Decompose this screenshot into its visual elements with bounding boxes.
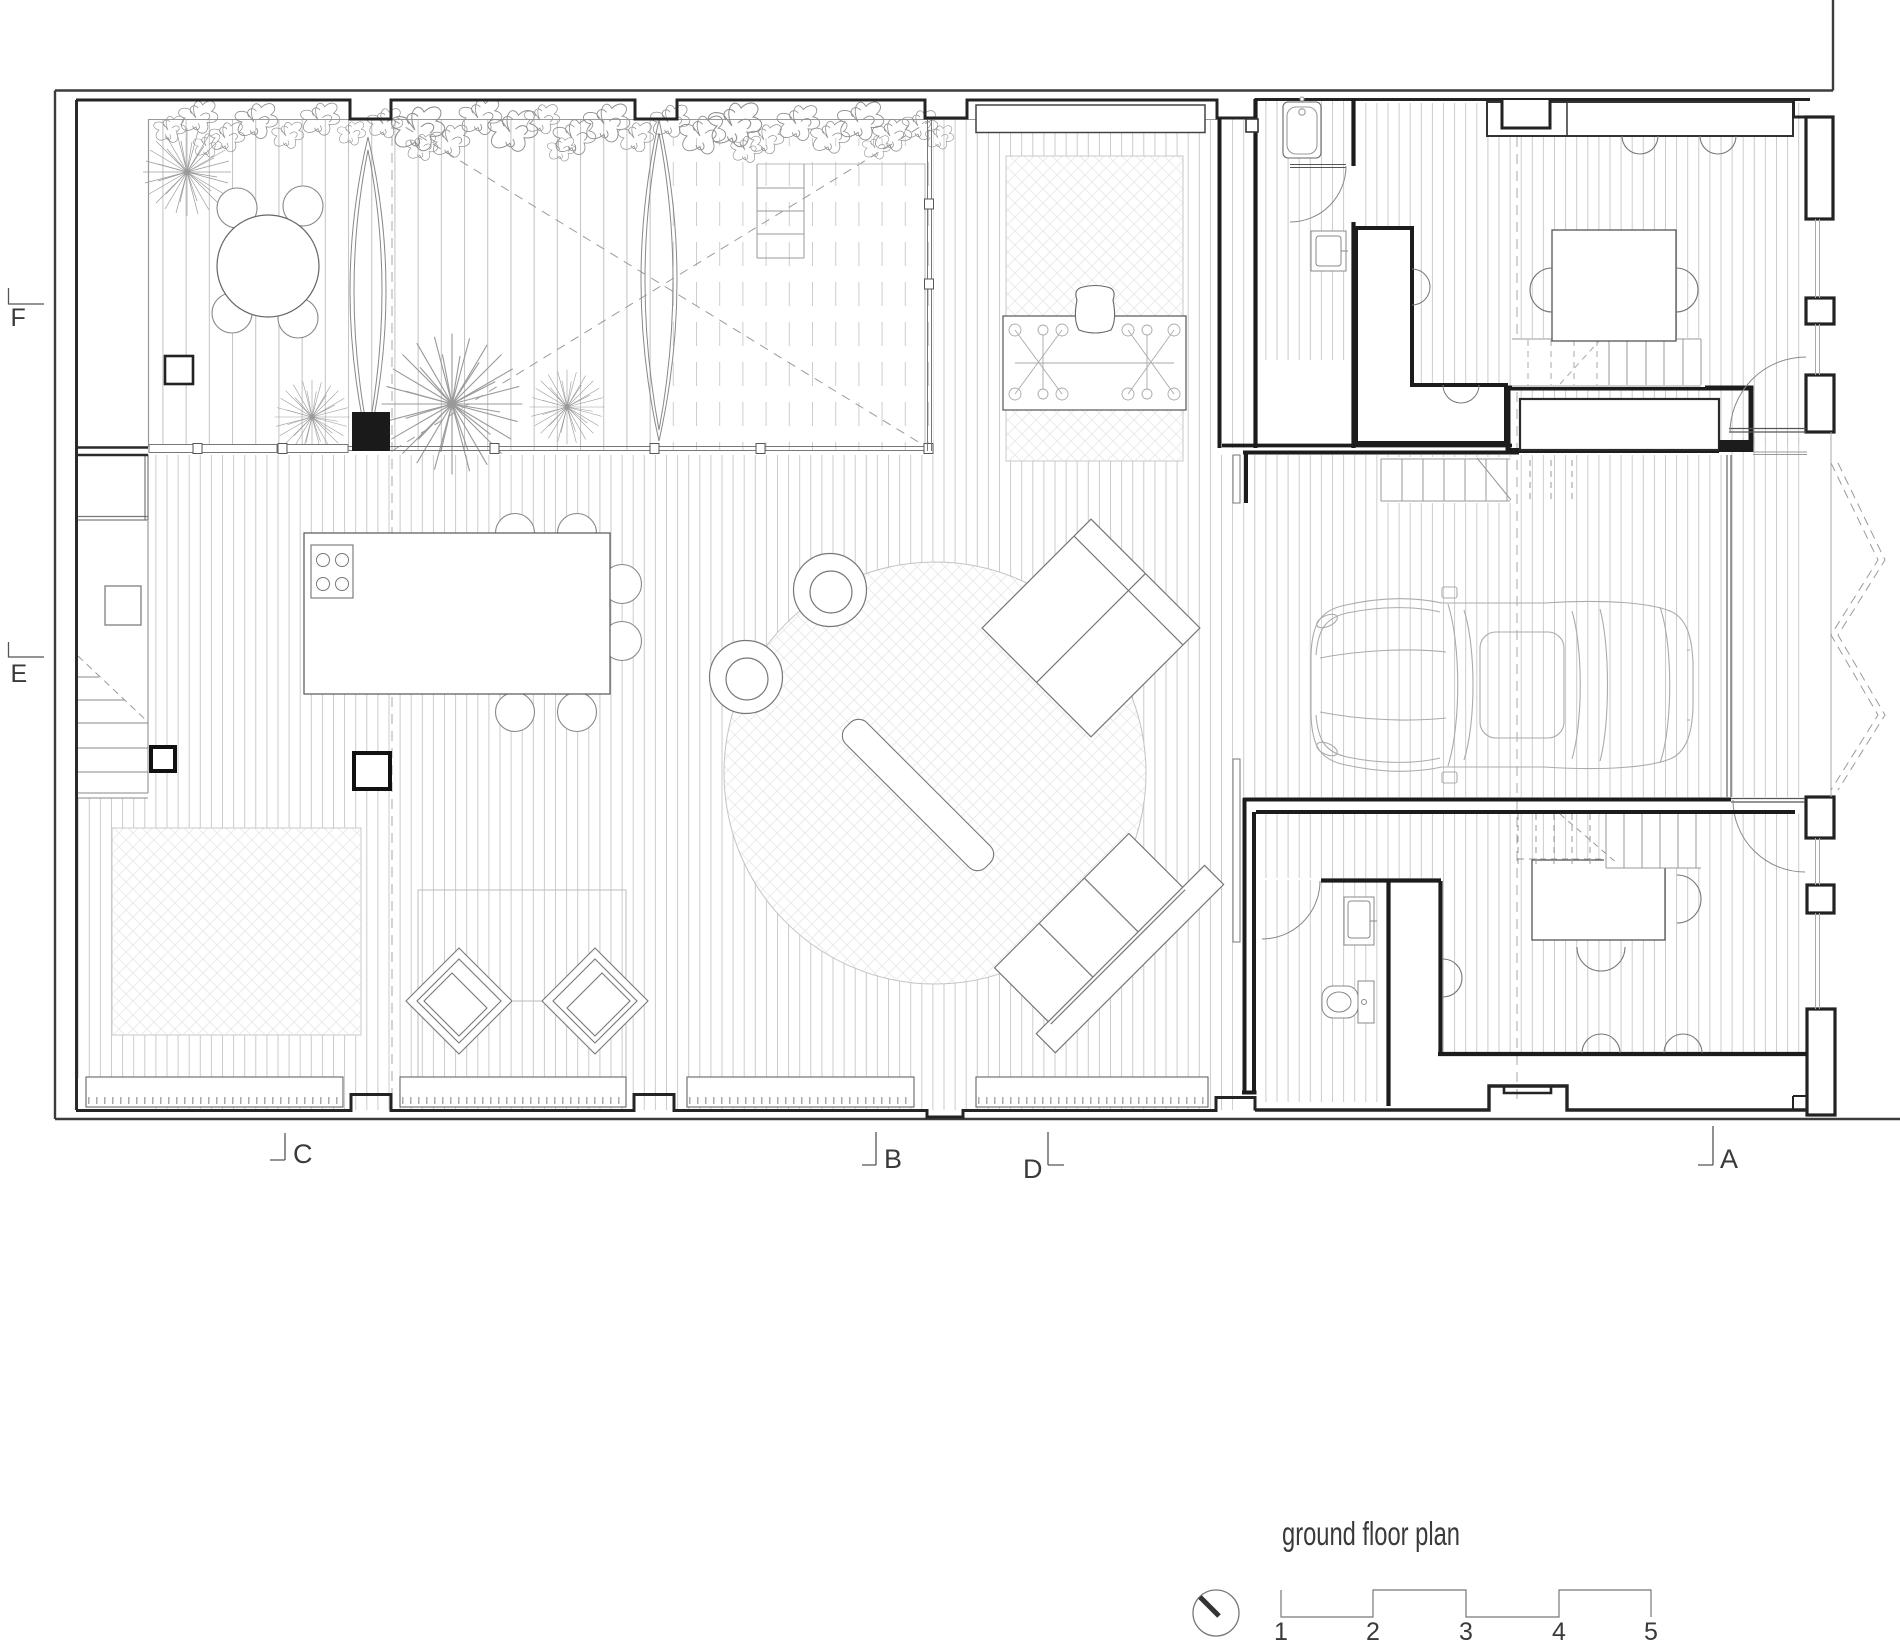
svg-text:4: 4	[1552, 1618, 1566, 1643]
svg-text:1: 1	[1274, 1618, 1288, 1643]
svg-text:E: E	[11, 660, 28, 688]
svg-text:C: C	[293, 1139, 313, 1169]
svg-text:D: D	[1023, 1154, 1043, 1184]
svg-text:ground floor plan: ground floor plan	[1282, 1515, 1460, 1552]
svg-text:3: 3	[1459, 1618, 1473, 1643]
svg-text:5: 5	[1644, 1618, 1658, 1643]
svg-text:A: A	[1720, 1144, 1738, 1174]
svg-text:B: B	[884, 1144, 902, 1174]
svg-text:2: 2	[1366, 1618, 1380, 1643]
svg-text:F: F	[11, 304, 26, 332]
